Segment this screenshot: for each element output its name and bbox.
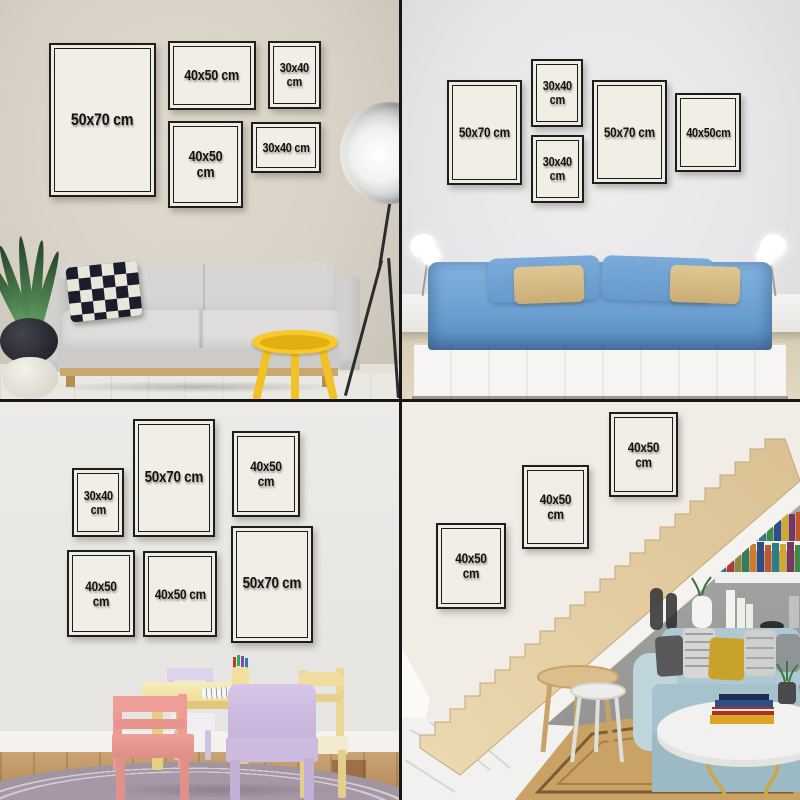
studio-lamp-dome bbox=[340, 102, 400, 204]
frame-mat: 40x50 cm bbox=[527, 470, 584, 544]
chair-leg bbox=[116, 756, 125, 800]
bedroom-scene: 50x70 cm 30x40 cm 30x40 cm 50x70 cm 40x5… bbox=[400, 0, 800, 400]
frame-mat: 50x70 cm bbox=[138, 424, 210, 532]
frame-size-label: 40x50 cm bbox=[242, 459, 289, 488]
frame-mat: 50x70 cm bbox=[452, 85, 517, 180]
plant-pot-white bbox=[2, 357, 58, 399]
picture-frame-40x50: 40x50 cm bbox=[143, 551, 217, 637]
patterned-pillow bbox=[744, 630, 776, 676]
book-yellow bbox=[710, 715, 774, 724]
picture-frame-30x40: 30x40 cm bbox=[531, 135, 584, 203]
frame-mat: 40x50 cm bbox=[148, 556, 212, 632]
frame-mat: 30x40 cm bbox=[77, 473, 119, 532]
chair-back-rail bbox=[115, 719, 185, 729]
frame-mockup-collage: 50x70 cm 40x50 cm 30x40 cm 40x50 cm 30x4… bbox=[0, 0, 800, 800]
tan-pillow-right bbox=[669, 265, 740, 304]
picture-frame-40x50: 40x50 cm bbox=[232, 431, 300, 517]
picture-frame-50x70: 50x70 cm bbox=[49, 43, 156, 197]
chair-seat bbox=[112, 734, 194, 758]
frame-mat: 30x40 cm bbox=[536, 140, 579, 198]
frame-mat: 30x40 cm bbox=[273, 46, 316, 104]
triangle-pattern-pillow bbox=[65, 260, 142, 322]
frame-mat: 40x50 cm bbox=[237, 436, 295, 512]
frame-mat: 30x40 cm bbox=[536, 64, 578, 122]
frame-size-label: 40x50 cm bbox=[620, 440, 668, 469]
kids-room-scene: 30x40 cm 50x70 cm 40x50 cm 40x50 cm 40x5… bbox=[0, 400, 400, 800]
picture-frame-30x40: 30x40 cm bbox=[268, 41, 321, 109]
picture-frame-50x70: 50x70 cm bbox=[447, 80, 522, 185]
frame-size-label: 40x50 cm bbox=[77, 579, 124, 608]
staircase-scene: 40x50 cm 40x50 cm 40x50 cm bbox=[400, 400, 800, 800]
sofa-leg bbox=[66, 376, 75, 387]
dark-gray-pillow bbox=[655, 635, 686, 677]
chair-leg bbox=[205, 730, 211, 760]
picture-frame-40x50: 40x50 cm bbox=[67, 550, 135, 637]
chair-back-rail bbox=[113, 696, 187, 712]
picture-frame-40x50: 40x50 cm bbox=[436, 523, 506, 609]
frame-size-label: 50x70 cm bbox=[459, 125, 510, 140]
frame-size-label: 40x50 cm bbox=[185, 68, 240, 84]
pencil bbox=[241, 656, 244, 667]
frame-size-label: 30x40 cm bbox=[262, 141, 309, 155]
chair-leg bbox=[180, 756, 189, 800]
frame-size-label: 30x40 cm bbox=[542, 79, 571, 106]
frame-mat: 40x50 cm bbox=[72, 555, 130, 632]
living-room-scene: 50x70 cm 40x50 cm 30x40 cm 40x50 cm 30x4… bbox=[0, 0, 400, 400]
frame-size-label: 40x50 cm bbox=[532, 492, 578, 521]
picture-frame-40x50: 40x50 cm bbox=[168, 41, 256, 110]
picture-frame-40x50: 40x50 cm bbox=[609, 412, 678, 497]
photo-seam-horizontal bbox=[0, 399, 800, 402]
chair-backrest bbox=[228, 684, 316, 740]
chair-leg bbox=[230, 760, 240, 800]
frame-size-label: 30x40 cm bbox=[83, 489, 112, 516]
frame-mat: 40x50cm bbox=[680, 98, 736, 167]
picture-frame-40x50: 40x50 cm bbox=[168, 121, 243, 208]
frame-size-label: 30x40 cm bbox=[543, 155, 572, 182]
frame-size-label: 40x50 cm bbox=[179, 149, 232, 180]
frame-size-label: 50x70 cm bbox=[145, 470, 204, 487]
picture-frame-30x40: 30x40 cm bbox=[531, 59, 583, 127]
picture-frame-40x50: 40x50 cm bbox=[522, 465, 589, 549]
bed-base bbox=[414, 343, 786, 400]
frame-size-label: 40x50 cm bbox=[155, 587, 206, 602]
frame-mat: 50x70 cm bbox=[54, 48, 151, 192]
picture-frame-50x70: 50x70 cm bbox=[592, 80, 667, 184]
sofa-shadow bbox=[46, 381, 346, 393]
yellow-stool-recess bbox=[260, 335, 330, 350]
chair-leg bbox=[338, 750, 346, 798]
chair-back-rail bbox=[167, 668, 213, 680]
chair-leg bbox=[304, 758, 314, 800]
frame-mat: 40x50 cm bbox=[614, 417, 673, 492]
frame-size-label: 50x70 cm bbox=[243, 576, 302, 593]
picture-frame-50x70: 50x70 cm bbox=[133, 419, 215, 537]
frame-size-label: 40x50cm bbox=[686, 126, 730, 140]
stool-leg bbox=[291, 352, 299, 400]
frame-mat: 50x70 cm bbox=[236, 531, 308, 638]
book-navy bbox=[719, 694, 769, 700]
shelf-board bbox=[715, 572, 800, 583]
frame-mat: 40x50 cm bbox=[173, 126, 238, 203]
frame-mat: 30x40 cm bbox=[256, 127, 316, 168]
frame-size-label: 40x50 cm bbox=[447, 551, 496, 580]
tan-pillow-left bbox=[513, 265, 584, 304]
frame-mat: 40x50 cm bbox=[441, 528, 501, 604]
pencil bbox=[237, 655, 240, 666]
frame-mat: 40x50 cm bbox=[173, 46, 251, 105]
frame-mat: 50x70 cm bbox=[597, 85, 662, 179]
picture-frame-30x40: 30x40 cm bbox=[251, 122, 321, 173]
frame-size-label: 50x70 cm bbox=[71, 111, 133, 129]
yellow-pillow bbox=[708, 637, 746, 681]
frame-size-label: 30x40 cm bbox=[280, 61, 309, 88]
plant-pot bbox=[778, 682, 796, 704]
frame-size-label: 50x70 cm bbox=[604, 125, 655, 140]
picture-frame-50x70: 50x70 cm bbox=[231, 526, 313, 643]
lamp-stem bbox=[378, 194, 392, 266]
picture-frame-30x40: 30x40 cm bbox=[72, 468, 124, 537]
picture-frame-40x50: 40x50cm bbox=[675, 93, 741, 172]
book-blue bbox=[715, 700, 773, 707]
